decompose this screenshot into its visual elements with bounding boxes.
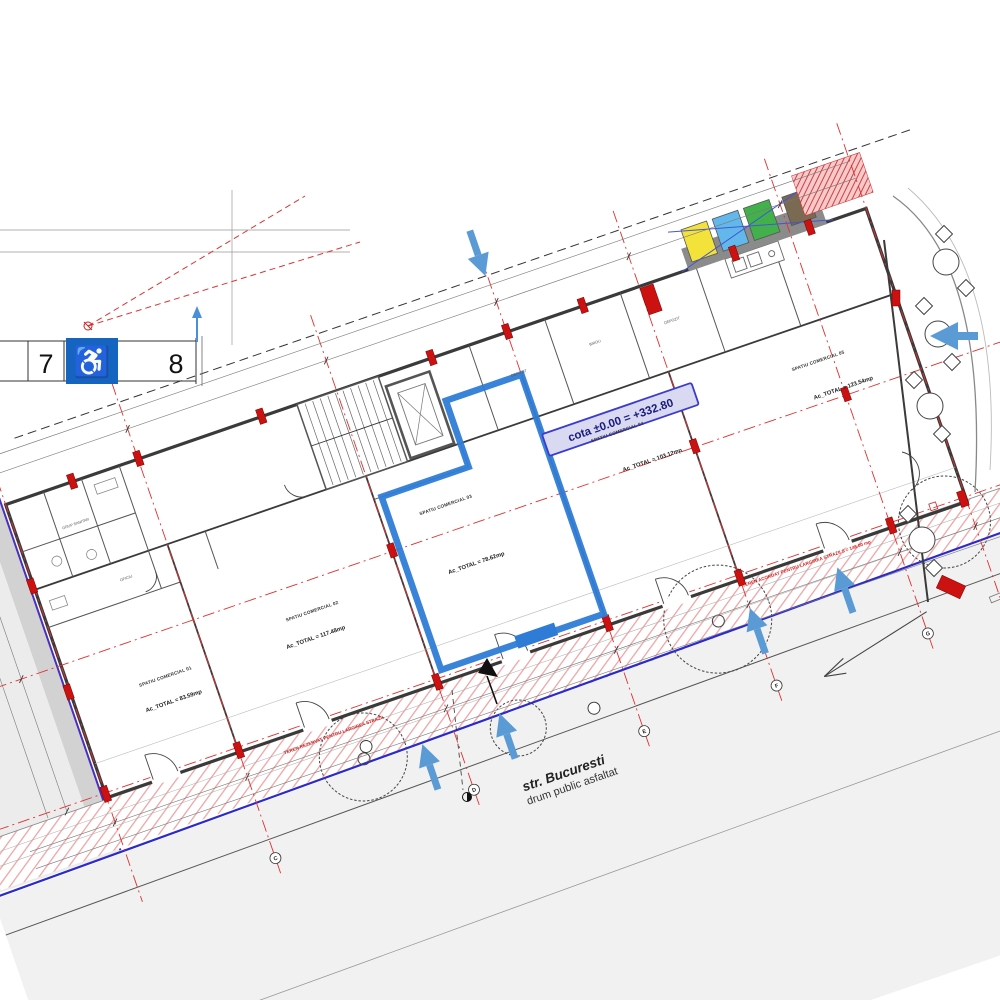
blue-highlight-outline (359, 375, 604, 670)
terrace-chair (944, 354, 961, 371)
neighbour-hatch-band (791, 153, 873, 216)
left-room-label: GRUP SANITAR (62, 517, 90, 530)
terrace-table (933, 249, 959, 275)
unit-5-name: SPATIU COMERCIAL 05 (791, 349, 845, 372)
unit-3-name: SPATIU COMERCIAL 03 (419, 493, 473, 516)
cota-label: cota ±0.00 = +332.80 (542, 383, 699, 456)
floor-plan-svg: str. Bucuresti drum public asfaltat TERE… (0, 0, 1000, 1000)
grid-number-row: 7 8 ♿ (0, 336, 202, 386)
sanitary-fixtures (18, 478, 149, 610)
terrace-table (917, 393, 943, 419)
back-room-label: BIROU (589, 339, 602, 347)
back-band-wall (35, 294, 895, 590)
terrace-chair (934, 426, 951, 443)
left-room-label: OFICIU (120, 574, 134, 582)
unit-2-name: SPATIU COMERCIAL 02 (285, 600, 339, 623)
rotated-plan-group: str. Bucuresti drum public asfaltat TERE… (0, 61, 1000, 1000)
terrace-chair (906, 372, 923, 389)
unit-1-name: SPATIU COMERCIAL 01 (138, 665, 192, 688)
grid-number-8: 8 (168, 349, 183, 379)
wheelchair-icon: ♿ (73, 344, 110, 379)
unit-2-area: Ac_TOTAL = 117.48mp (286, 625, 347, 651)
unit-1-area: Ac_TOTAL = 83.59mp (145, 689, 203, 714)
blue-arrow-icon (459, 227, 495, 280)
red-note-symbol (929, 502, 938, 511)
unit-4-area: Ac_TOTAL = 103.12mp (622, 448, 683, 474)
terrace-column (892, 290, 900, 306)
terrace-table (909, 527, 935, 553)
grid-number-7: 7 (38, 349, 53, 379)
terrace-chair (958, 280, 975, 297)
unit-3-area: Ac_TOTAL = 78.62mp (448, 551, 506, 576)
back-room-label: DEPOZIT (664, 316, 682, 325)
floor-plan-screenshot: str. Bucuresti drum public asfaltat TERE… (0, 0, 1000, 1000)
terrace-chair (916, 298, 933, 315)
red-axis-origin-icon (84, 322, 92, 330)
red-diagonal-dashed-lines (88, 196, 360, 326)
blue-arrow-small-icon (192, 306, 202, 342)
terrace-chair (936, 226, 953, 243)
